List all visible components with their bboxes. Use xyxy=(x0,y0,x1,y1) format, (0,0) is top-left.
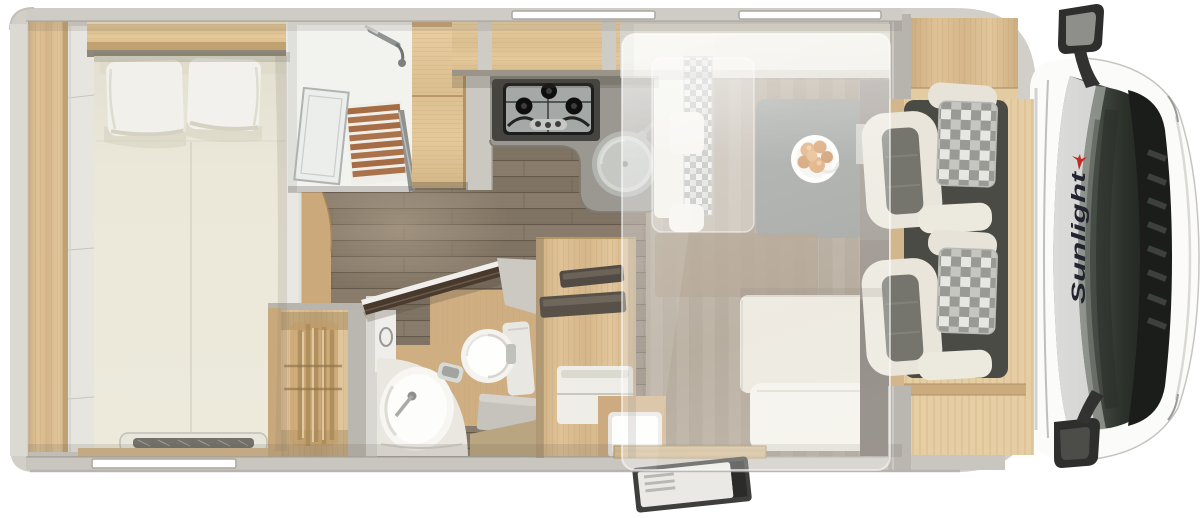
svg-text:Sunlight: Sunlight xyxy=(1069,171,1090,304)
